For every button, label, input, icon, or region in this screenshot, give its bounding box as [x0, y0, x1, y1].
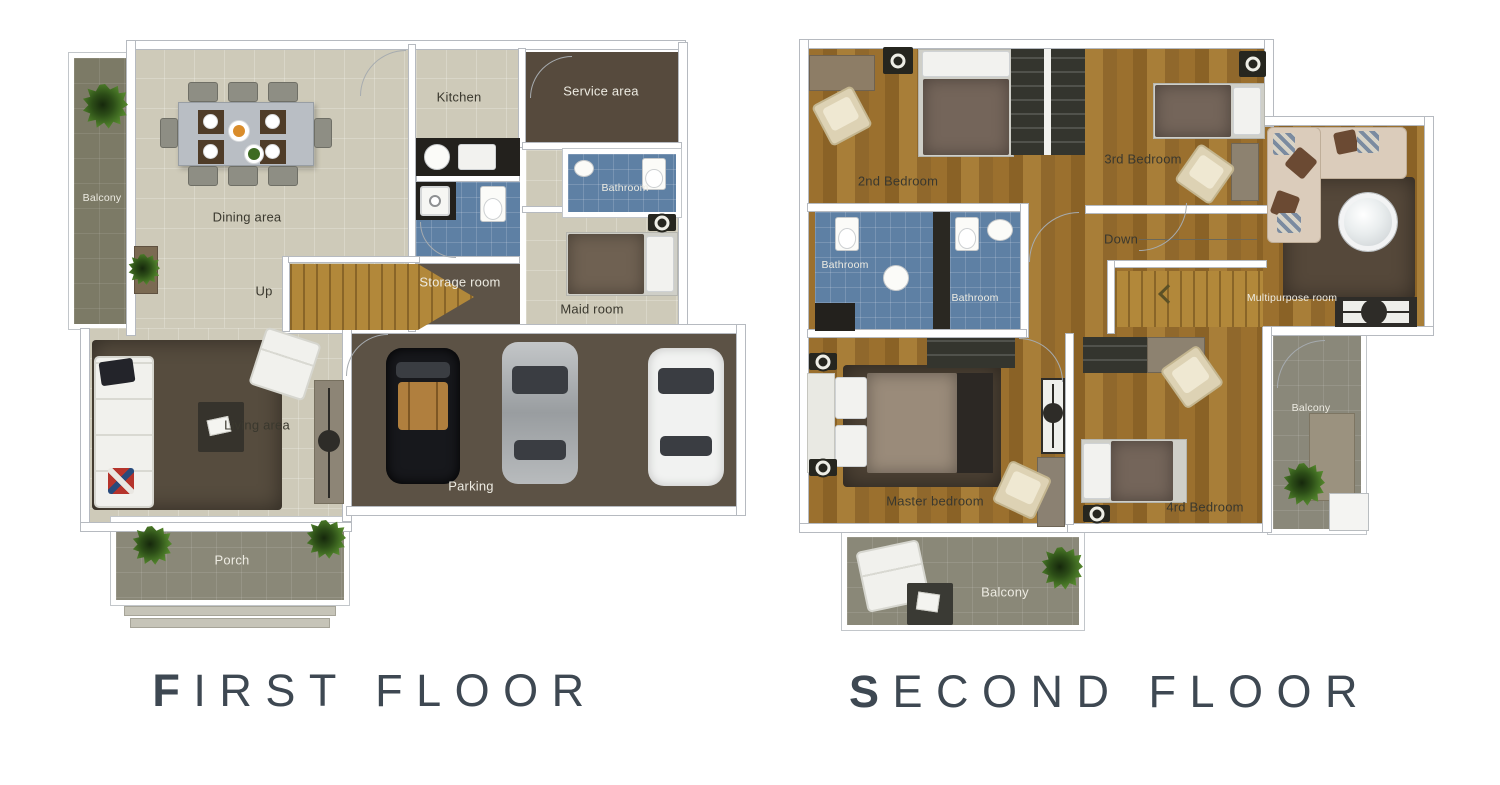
pillow — [1333, 129, 1359, 155]
dining-chair — [160, 118, 178, 148]
room-label-2nd-bedroom: 2nd Bedroom — [858, 174, 938, 189]
room-label-service-area: Service area — [563, 84, 638, 99]
stairs-up — [290, 264, 418, 330]
room-label-parking: Parking — [448, 479, 493, 494]
bed-pillow — [835, 377, 867, 419]
car-rear-window — [660, 436, 712, 456]
speaker-icon — [1083, 505, 1110, 522]
car-interior — [398, 382, 448, 430]
speaker-icon — [809, 459, 837, 476]
speaker-icon — [648, 214, 676, 231]
wall — [416, 256, 520, 264]
ac-unit — [1329, 493, 1369, 531]
wall — [736, 324, 746, 516]
wall — [1107, 260, 1267, 268]
first-floor-title: FIRST FLOOR — [152, 665, 597, 717]
pillow — [1277, 213, 1301, 233]
room-label-balcony: Balcony — [83, 192, 122, 204]
dining-chair — [314, 118, 332, 148]
wall — [1107, 260, 1115, 334]
wall — [288, 256, 420, 263]
room-label-bathroom-left: Bathroom — [821, 259, 868, 271]
wall — [518, 48, 526, 148]
wall — [799, 523, 1071, 533]
room-label-maid-room: Maid room — [560, 302, 623, 317]
room-label-master-bedroom: Master bedroom — [886, 494, 983, 509]
dining-chair — [268, 82, 298, 102]
wall — [678, 42, 688, 332]
bed-pillow — [835, 425, 867, 467]
room-label-3rd-bedroom: 3rd Bedroom — [1104, 152, 1181, 167]
dining-chair — [268, 166, 298, 186]
bed-blanket — [923, 79, 1009, 155]
dining-chair — [188, 82, 218, 102]
speaker-icon — [1239, 51, 1266, 77]
room-label-storage-room: Storage room — [419, 275, 500, 290]
speaker-icon — [883, 47, 913, 74]
dining-chair — [228, 82, 258, 102]
car-rear-window — [514, 440, 566, 460]
floor-plans-canvas: Balcony Dining area Kitchen Service area… — [0, 0, 1500, 785]
wall — [807, 203, 1023, 212]
car-windshield — [512, 366, 568, 394]
wall — [1424, 116, 1434, 336]
bath-counter — [815, 303, 855, 331]
bed-pillow — [1233, 87, 1261, 135]
speaker-icon — [809, 353, 837, 370]
wall — [1020, 203, 1029, 338]
sink-icon — [987, 219, 1013, 241]
desk — [809, 55, 875, 91]
wall — [1065, 333, 1074, 525]
bathroom-divider — [933, 212, 950, 331]
room-label-down: Down — [1104, 232, 1138, 247]
union-jack-pillow — [108, 468, 134, 494]
wall — [1264, 116, 1434, 126]
bed-blanket — [1155, 85, 1231, 137]
toilet-icon — [835, 217, 859, 251]
pillow — [1357, 131, 1379, 153]
car-silver — [502, 342, 578, 484]
room-label-up: Up — [255, 284, 272, 299]
lamp-icon — [318, 430, 340, 452]
wall — [1262, 326, 1272, 533]
first-floor-plan: Balcony Dining area Kitchen Service area… — [60, 40, 760, 680]
second-floor-plan: 2nd Bedroom 3rd Bedroom Bathroom Bathroo… — [795, 35, 1455, 655]
bed-pillow — [922, 51, 1010, 77]
kitchen-sink — [458, 144, 496, 170]
wall — [282, 256, 290, 332]
bed-headboard — [807, 373, 835, 473]
room-label-balcony-rear: Balcony — [981, 585, 1029, 600]
sink-icon — [883, 265, 909, 291]
desk — [1231, 143, 1259, 201]
room-label-porch: Porch — [215, 553, 250, 568]
dining-chair — [188, 166, 218, 186]
toilet-icon — [955, 217, 979, 251]
dining-chair — [228, 166, 258, 186]
plate — [265, 144, 280, 159]
plate — [203, 114, 218, 129]
wall — [126, 40, 686, 50]
wall — [80, 522, 352, 532]
lamp-icon — [1043, 403, 1063, 423]
car-windshield — [658, 368, 714, 394]
pillow — [98, 358, 135, 386]
plant-dish — [248, 148, 260, 160]
book — [916, 592, 940, 613]
stairs-down — [1115, 271, 1263, 327]
wall — [80, 328, 90, 530]
room-label-living-area: Living area — [224, 418, 290, 433]
maid-bed-pillow — [646, 236, 674, 292]
room-label-multipurpose-room: Multipurpose room — [1247, 292, 1337, 304]
wall — [346, 506, 744, 516]
wardrobe-divider — [1044, 49, 1051, 155]
porch-step — [130, 618, 330, 628]
food-dish — [233, 125, 245, 137]
console-bar — [1343, 311, 1409, 313]
wardrobe — [1083, 337, 1147, 373]
round-table — [1339, 193, 1397, 251]
maid-bed-blanket — [568, 234, 644, 294]
pillow — [1273, 133, 1295, 155]
bed-pillow — [1083, 443, 1111, 499]
wall — [1264, 326, 1434, 336]
plate — [265, 114, 280, 129]
wall — [801, 39, 1274, 49]
room-label-kitchen: Kitchen — [437, 90, 482, 105]
porch-step — [124, 606, 336, 616]
wall — [1067, 523, 1272, 533]
second-floor-title: SECOND FLOOR — [849, 666, 1371, 718]
room-label-bathroom: Bathroom — [601, 182, 648, 194]
wardrobe — [927, 338, 1015, 368]
washing-machine-icon — [420, 186, 450, 216]
sink-icon — [574, 160, 594, 177]
stove — [424, 144, 450, 170]
toilet-icon — [480, 186, 506, 222]
room-label-bathroom-right: Bathroom — [951, 292, 998, 304]
wall — [522, 142, 682, 150]
bed-footboard — [957, 373, 993, 473]
bed-blanket — [1111, 441, 1173, 501]
room-label-dining-area: Dining area — [213, 210, 282, 225]
plate — [203, 144, 218, 159]
room-label-balcony-side: Balcony — [1292, 402, 1331, 414]
room-label-4rd-bedroom: 4rd Bedroom — [1166, 500, 1243, 515]
bed-blanket — [867, 373, 957, 473]
car-windshield — [396, 362, 450, 378]
